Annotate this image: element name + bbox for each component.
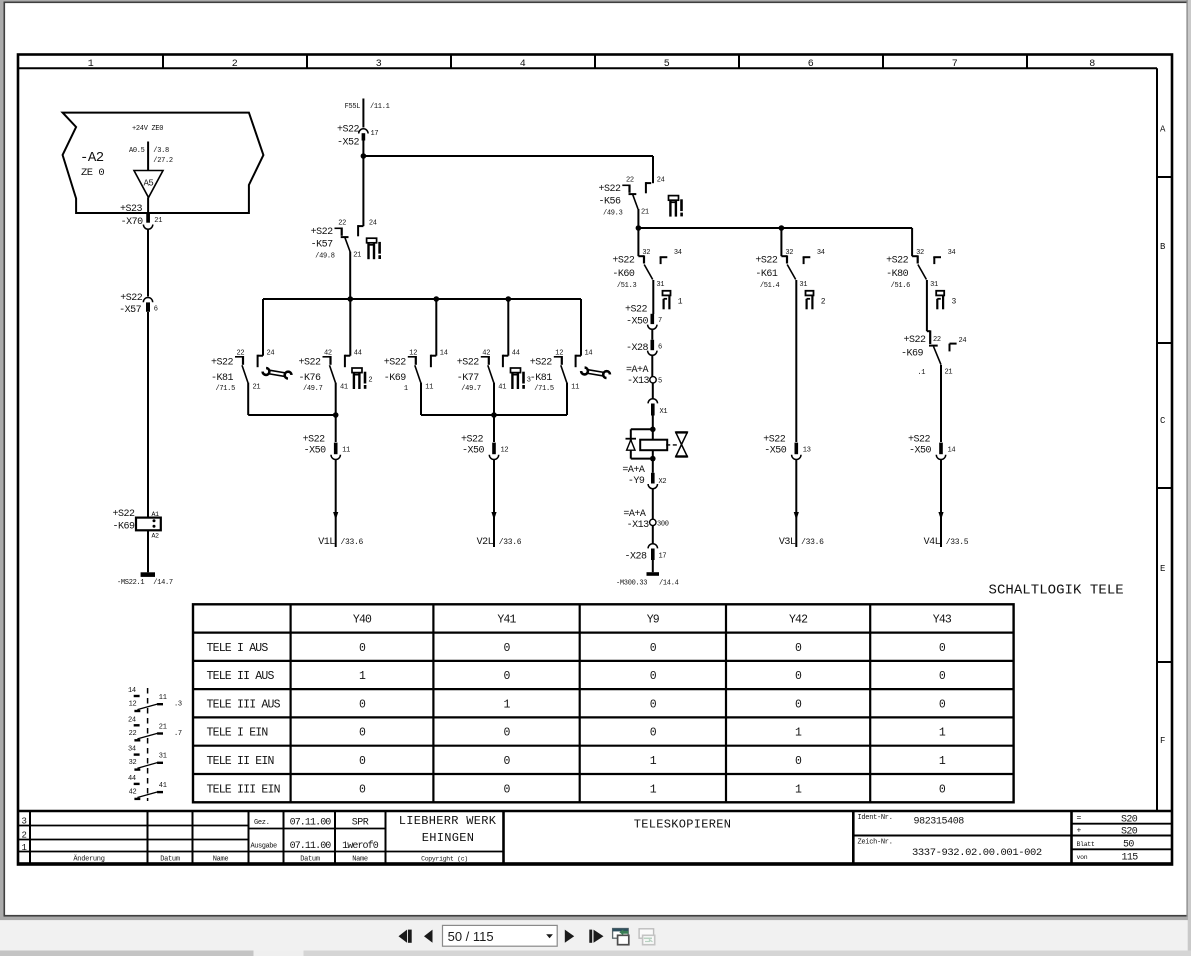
svg-text:/71.5: /71.5	[534, 385, 554, 393]
svg-text:2: 2	[821, 298, 826, 307]
svg-text:-K80: -K80	[886, 269, 909, 280]
svg-text:Blatt: Blatt	[1077, 841, 1095, 848]
svg-text:21: 21	[353, 252, 361, 260]
svg-text:TELE II EIN: TELE II EIN	[207, 755, 274, 768]
svg-text:/51.6: /51.6	[891, 282, 911, 290]
svg-text:-MS22.1: -MS22.1	[117, 579, 144, 587]
svg-text:17: 17	[371, 130, 379, 138]
svg-text:V4L: V4L	[924, 537, 941, 548]
svg-text:50: 50	[1123, 840, 1134, 851]
svg-text:31: 31	[159, 753, 167, 761]
svg-text:Zeich-Nr.: Zeich-Nr.	[858, 839, 893, 847]
svg-text:5: 5	[664, 59, 670, 70]
svg-text:12: 12	[501, 447, 509, 455]
svg-text:=A+A: =A+A	[622, 465, 645, 476]
svg-text:A0.5: A0.5	[129, 147, 145, 155]
svg-text:6: 6	[154, 306, 158, 314]
svg-text:0: 0	[503, 727, 510, 740]
svg-text:ZE 0: ZE 0	[81, 167, 104, 179]
svg-text:-K81: -K81	[530, 373, 553, 384]
svg-text:0: 0	[503, 642, 510, 655]
svg-text:34: 34	[674, 249, 682, 257]
svg-text:2: 2	[368, 377, 372, 385]
svg-text:/49.7: /49.7	[461, 385, 481, 393]
svg-text:31: 31	[656, 281, 664, 289]
svg-text:Name: Name	[352, 856, 368, 864]
svg-text:Copyright (c): Copyright (c)	[421, 856, 468, 863]
svg-text:-X28: -X28	[626, 343, 649, 354]
svg-text:=A+A: =A+A	[623, 509, 646, 520]
svg-text:V1L: V1L	[318, 537, 335, 548]
svg-text:+: +	[1077, 827, 1082, 836]
svg-text:F55L: F55L	[345, 103, 361, 111]
svg-text:32: 32	[785, 249, 793, 257]
svg-text:/33.6: /33.6	[341, 538, 364, 547]
svg-text:-K61: -K61	[755, 269, 778, 280]
svg-text:-K69: -K69	[112, 522, 135, 533]
svg-text:2: 2	[232, 59, 238, 70]
svg-text:24: 24	[369, 220, 377, 228]
svg-text:/49.7: /49.7	[303, 385, 323, 393]
svg-text:0: 0	[359, 783, 366, 796]
svg-text:0: 0	[359, 642, 366, 655]
svg-text:14: 14	[128, 687, 136, 695]
svg-text:17: 17	[659, 553, 667, 561]
svg-text:0: 0	[650, 670, 657, 683]
svg-text:V2L: V2L	[477, 537, 494, 548]
svg-text:-X52: -X52	[337, 138, 360, 149]
svg-text:+S22: +S22	[530, 358, 553, 369]
svg-text:Änderung: Änderung	[73, 855, 104, 864]
svg-text:42: 42	[129, 788, 137, 796]
svg-text:von: von	[1077, 854, 1088, 861]
svg-text:4: 4	[520, 59, 526, 70]
svg-text:+S22: +S22	[457, 358, 480, 369]
svg-text:5: 5	[658, 378, 662, 386]
svg-text:13: 13	[803, 447, 811, 455]
svg-text:Datum: Datum	[160, 856, 180, 864]
svg-text:EHINGEN: EHINGEN	[422, 831, 475, 845]
svg-text:+S22: +S22	[311, 227, 334, 238]
svg-text:.7: .7	[174, 730, 182, 738]
svg-text:V3L: V3L	[779, 537, 796, 548]
svg-text:1: 1	[404, 385, 408, 393]
svg-text:50 / 115: 50 / 115	[448, 929, 494, 944]
svg-text:11: 11	[159, 694, 167, 702]
svg-text:0: 0	[650, 698, 657, 711]
svg-text:1: 1	[939, 755, 946, 768]
svg-text:-X28: -X28	[624, 552, 647, 563]
svg-text:31: 31	[799, 281, 807, 289]
svg-text:0: 0	[795, 642, 802, 655]
svg-text:-X13: -X13	[627, 520, 650, 531]
svg-text:34: 34	[128, 746, 136, 754]
svg-text:42: 42	[324, 349, 332, 357]
svg-text:-Y9: -Y9	[628, 476, 645, 487]
svg-text:11: 11	[342, 447, 350, 455]
svg-text:-K60: -K60	[612, 269, 635, 280]
svg-text:A5: A5	[144, 179, 154, 189]
svg-text:0: 0	[939, 698, 946, 711]
svg-text:1: 1	[795, 727, 802, 740]
svg-text:-K56: -K56	[598, 197, 621, 208]
svg-text:3337-932.02.00.001-002: 3337-932.02.00.001-002	[912, 847, 1042, 859]
svg-text:32: 32	[129, 759, 137, 767]
svg-text:1: 1	[359, 670, 366, 683]
svg-text:-M300.33: -M300.33	[616, 580, 647, 588]
svg-text:TELE III AUS: TELE III AUS	[207, 698, 281, 711]
svg-text:.3: .3	[174, 701, 182, 709]
svg-text:TELE I AUS: TELE I AUS	[207, 642, 269, 655]
svg-text:-A2: -A2	[80, 150, 104, 166]
svg-text:11: 11	[425, 384, 433, 392]
svg-text:/14.4: /14.4	[659, 580, 679, 588]
svg-text:+S22: +S22	[298, 358, 321, 369]
svg-text:+S22: +S22	[461, 435, 484, 446]
svg-text:0: 0	[503, 755, 510, 768]
svg-text:E: E	[1160, 564, 1165, 574]
svg-text:/14.7: /14.7	[153, 579, 173, 587]
svg-text:42: 42	[482, 349, 490, 357]
svg-text:/51.4: /51.4	[760, 282, 780, 290]
svg-text:Y43: Y43	[933, 614, 952, 627]
svg-text:-X70: -X70	[121, 217, 144, 228]
svg-text:A2: A2	[152, 533, 160, 540]
svg-text:21: 21	[253, 384, 261, 392]
svg-text:12: 12	[555, 349, 563, 357]
svg-text:300: 300	[657, 521, 669, 529]
svg-text:-X50: -X50	[764, 446, 787, 457]
svg-text:Y40: Y40	[353, 614, 372, 627]
svg-text:=A+A: =A+A	[626, 365, 649, 376]
svg-text:0: 0	[939, 783, 946, 796]
svg-text:1: 1	[678, 298, 683, 307]
svg-text:-K77: -K77	[457, 373, 480, 384]
svg-text:/3.8: /3.8	[153, 147, 169, 155]
svg-text:A1: A1	[152, 511, 160, 518]
svg-text:982315408: 982315408	[914, 817, 965, 828]
svg-text:22: 22	[626, 177, 634, 185]
svg-text:+S22: +S22	[763, 435, 786, 446]
svg-text:3: 3	[376, 59, 382, 70]
svg-text:-K76: -K76	[298, 373, 321, 384]
svg-text:0: 0	[503, 783, 510, 796]
svg-text:41: 41	[498, 384, 506, 392]
svg-text:/33.6: /33.6	[801, 538, 824, 547]
svg-text:12: 12	[129, 701, 137, 709]
svg-text:07.11.00: 07.11.00	[290, 841, 332, 852]
svg-text:24: 24	[267, 349, 275, 357]
svg-text:.1: .1	[917, 369, 925, 377]
svg-text:32: 32	[642, 249, 650, 257]
svg-text:6: 6	[808, 59, 814, 70]
svg-text:14: 14	[585, 349, 593, 357]
svg-text:22: 22	[933, 336, 941, 344]
svg-text:Y42: Y42	[789, 614, 808, 627]
svg-text:+S22: +S22	[755, 256, 778, 267]
svg-text:/51.3: /51.3	[617, 282, 637, 290]
svg-text:11: 11	[571, 384, 579, 392]
svg-text:+S22: +S22	[625, 305, 648, 316]
svg-text:TELE III EIN: TELE III EIN	[207, 783, 280, 796]
svg-text:+S23: +S23	[120, 204, 143, 215]
svg-text:TELE II AUS: TELE II AUS	[207, 670, 275, 683]
svg-text:X1: X1	[660, 408, 668, 416]
svg-text:7: 7	[658, 317, 662, 325]
svg-text:21: 21	[159, 723, 167, 731]
svg-text:SPR: SPR	[352, 818, 369, 829]
svg-text:0: 0	[795, 755, 802, 768]
svg-text:TELESKOPIEREN: TELESKOPIEREN	[634, 818, 732, 832]
svg-text:115: 115	[1122, 852, 1139, 863]
svg-text:8: 8	[1089, 59, 1095, 70]
svg-text:SCHALTLOGIK TELE: SCHALTLOGIK TELE	[989, 583, 1124, 599]
svg-text:/27.2: /27.2	[153, 157, 173, 165]
svg-text:0: 0	[359, 727, 366, 740]
svg-text:24: 24	[657, 177, 665, 185]
svg-text:32: 32	[916, 249, 924, 257]
svg-text:+24V ZE0: +24V ZE0	[132, 125, 163, 133]
svg-text:=: =	[1077, 814, 1082, 823]
svg-text:/49.8: /49.8	[315, 253, 335, 261]
svg-text:1: 1	[939, 727, 946, 740]
svg-text:0: 0	[503, 670, 510, 683]
svg-text:07.11.00: 07.11.00	[290, 818, 332, 829]
svg-text:-K81: -K81	[211, 373, 234, 384]
svg-text:31: 31	[930, 281, 938, 289]
svg-text:Name: Name	[213, 856, 229, 864]
svg-text:14: 14	[948, 447, 956, 455]
svg-text:-X50: -X50	[462, 446, 485, 457]
svg-text:41: 41	[159, 782, 167, 790]
svg-text:44: 44	[354, 349, 362, 357]
svg-text:Gez.: Gez.	[254, 819, 270, 827]
svg-text:24: 24	[128, 716, 136, 724]
svg-text:F: F	[1160, 736, 1165, 746]
svg-text:34: 34	[817, 249, 825, 257]
svg-text:0: 0	[650, 642, 657, 655]
svg-text:-X57: -X57	[119, 305, 142, 316]
svg-text:1: 1	[795, 783, 802, 796]
svg-text:-K69: -K69	[901, 349, 924, 360]
svg-text:+S22: +S22	[211, 358, 234, 369]
svg-text:1: 1	[88, 59, 94, 70]
svg-text:14: 14	[440, 349, 448, 357]
svg-text:0: 0	[795, 670, 802, 683]
svg-text:44: 44	[512, 349, 520, 357]
svg-text:-X50: -X50	[909, 446, 932, 457]
svg-text:12: 12	[409, 349, 417, 357]
svg-text:LIEBHERR WERK: LIEBHERR WERK	[399, 814, 497, 828]
svg-text:2: 2	[22, 831, 27, 841]
svg-text:0: 0	[359, 755, 366, 768]
svg-text:+S22: +S22	[903, 335, 926, 346]
svg-text:/33.6: /33.6	[499, 538, 522, 547]
svg-text:S20: S20	[1121, 826, 1138, 837]
svg-text:+S22: +S22	[120, 293, 143, 304]
svg-text:Y9: Y9	[647, 614, 660, 627]
svg-text:21: 21	[641, 209, 649, 217]
svg-text:-X50: -X50	[304, 446, 327, 457]
svg-text:34: 34	[948, 249, 956, 257]
svg-text:6: 6	[658, 344, 662, 352]
svg-text:+S22: +S22	[886, 256, 909, 267]
svg-text:21: 21	[154, 217, 162, 225]
svg-text:1: 1	[22, 843, 27, 853]
svg-text:TELE I EIN: TELE I EIN	[207, 727, 268, 740]
svg-text:/49.3: /49.3	[603, 210, 623, 218]
svg-text:3: 3	[952, 298, 957, 307]
svg-text:Y41: Y41	[497, 614, 516, 627]
svg-text:0: 0	[650, 727, 657, 740]
svg-text:0: 0	[939, 670, 946, 683]
svg-text:0: 0	[795, 698, 802, 711]
svg-text:41: 41	[340, 384, 348, 392]
svg-text:-X13: -X13	[627, 376, 650, 387]
svg-text:/71.5: /71.5	[215, 385, 235, 393]
svg-text:1: 1	[503, 698, 510, 711]
svg-text:22: 22	[237, 349, 245, 357]
svg-text:-K57: -K57	[311, 240, 334, 251]
svg-text:+S22: +S22	[598, 184, 621, 195]
svg-text:0: 0	[359, 698, 366, 711]
svg-text:3: 3	[22, 817, 27, 827]
svg-text:22: 22	[338, 220, 346, 228]
svg-text:-K69: -K69	[384, 373, 407, 384]
svg-text:Datum: Datum	[300, 856, 320, 864]
svg-text:-X50: -X50	[626, 317, 649, 328]
svg-text:X2: X2	[659, 478, 667, 486]
svg-text:+S22: +S22	[384, 358, 407, 369]
svg-text:+S22: +S22	[112, 509, 135, 520]
svg-text:Ident-Nr.: Ident-Nr.	[858, 814, 893, 822]
svg-text:0: 0	[939, 642, 946, 655]
svg-text:/33.5: /33.5	[946, 538, 969, 547]
svg-text:24: 24	[959, 337, 967, 345]
svg-text:1: 1	[650, 755, 657, 768]
svg-text:+S22: +S22	[908, 435, 931, 446]
svg-text:1: 1	[650, 783, 657, 796]
svg-text:21: 21	[945, 369, 953, 377]
svg-text:+S22: +S22	[337, 125, 360, 136]
svg-text:7: 7	[952, 59, 958, 70]
svg-text:Ausgabe: Ausgabe	[251, 843, 278, 851]
svg-text:+S22: +S22	[303, 435, 326, 446]
svg-text:/11.1: /11.1	[370, 103, 390, 111]
svg-text:+S22: +S22	[612, 256, 635, 267]
svg-text:S20: S20	[1121, 814, 1138, 825]
svg-text:44: 44	[128, 775, 136, 783]
svg-text:22: 22	[129, 730, 137, 738]
svg-text:1werof0: 1werof0	[342, 840, 379, 852]
